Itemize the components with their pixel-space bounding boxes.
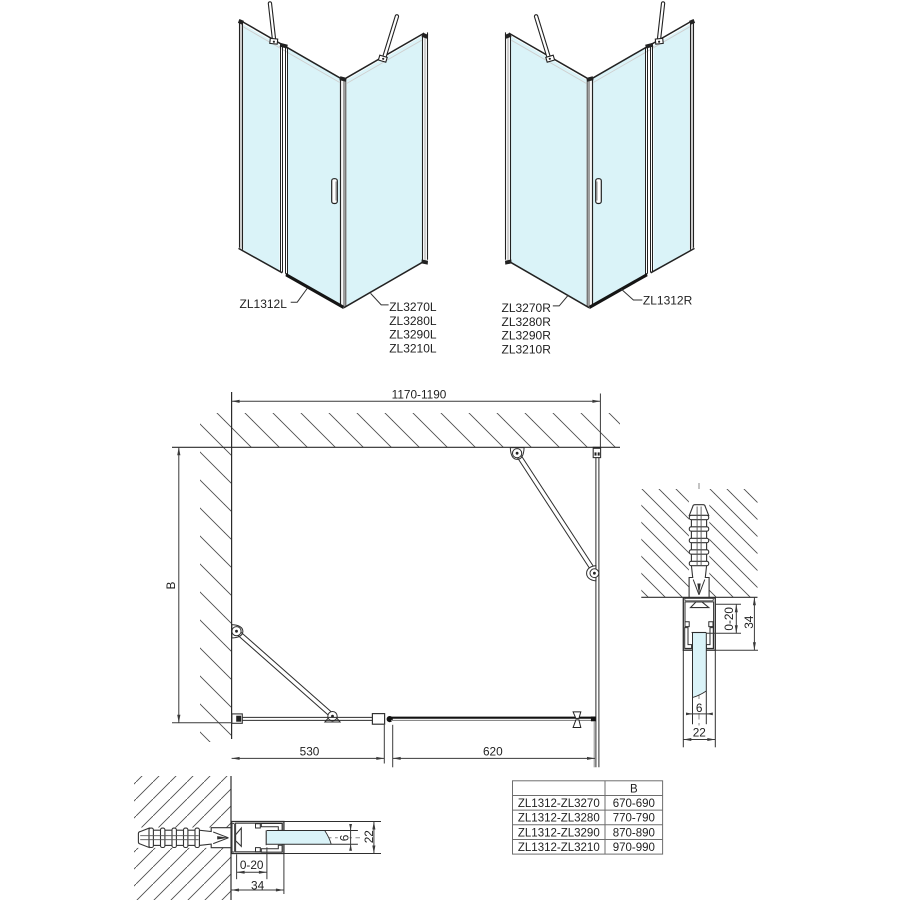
svg-text:670-690: 670-690 bbox=[613, 798, 655, 810]
svg-text:34: 34 bbox=[742, 615, 756, 629]
svg-text:6: 6 bbox=[696, 701, 703, 715]
svg-text:ZL1312L: ZL1312L bbox=[240, 297, 288, 311]
svg-text:0-20: 0-20 bbox=[722, 607, 736, 631]
svg-text:1170-1190: 1170-1190 bbox=[392, 388, 447, 402]
svg-text:22: 22 bbox=[693, 725, 706, 739]
svg-text:B: B bbox=[630, 783, 638, 795]
svg-text:ZL3280R: ZL3280R bbox=[502, 315, 552, 329]
svg-text:ZL1312-ZL3280: ZL1312-ZL3280 bbox=[518, 813, 600, 825]
svg-text:ZL3270R: ZL3270R bbox=[502, 301, 552, 315]
svg-text:ZL3270L: ZL3270L bbox=[389, 300, 437, 314]
svg-text:530: 530 bbox=[300, 744, 320, 758]
svg-text:ZL1312-ZL3290: ZL1312-ZL3290 bbox=[518, 827, 600, 839]
svg-text:0-20: 0-20 bbox=[240, 858, 264, 872]
svg-text:ZL3290R: ZL3290R bbox=[502, 329, 552, 343]
svg-text:6: 6 bbox=[337, 834, 351, 841]
svg-text:ZL3210R: ZL3210R bbox=[502, 343, 552, 357]
svg-text:ZL3210L: ZL3210L bbox=[389, 342, 437, 356]
svg-text:22: 22 bbox=[362, 830, 376, 843]
svg-text:ZL1312-ZL3270: ZL1312-ZL3270 bbox=[518, 798, 600, 810]
svg-text:620: 620 bbox=[483, 744, 503, 758]
svg-text:ZL1312-ZL3210: ZL1312-ZL3210 bbox=[518, 842, 600, 854]
svg-text:870-890: 870-890 bbox=[613, 827, 655, 839]
svg-text:ZL1312R: ZL1312R bbox=[643, 293, 693, 307]
svg-text:770-790: 770-790 bbox=[613, 813, 655, 825]
svg-text:970-990: 970-990 bbox=[613, 842, 655, 854]
svg-text:ZL3280L: ZL3280L bbox=[389, 314, 437, 328]
svg-text:34: 34 bbox=[251, 878, 265, 892]
svg-text:B: B bbox=[164, 581, 178, 589]
svg-text:ZL3290L: ZL3290L bbox=[389, 328, 437, 342]
